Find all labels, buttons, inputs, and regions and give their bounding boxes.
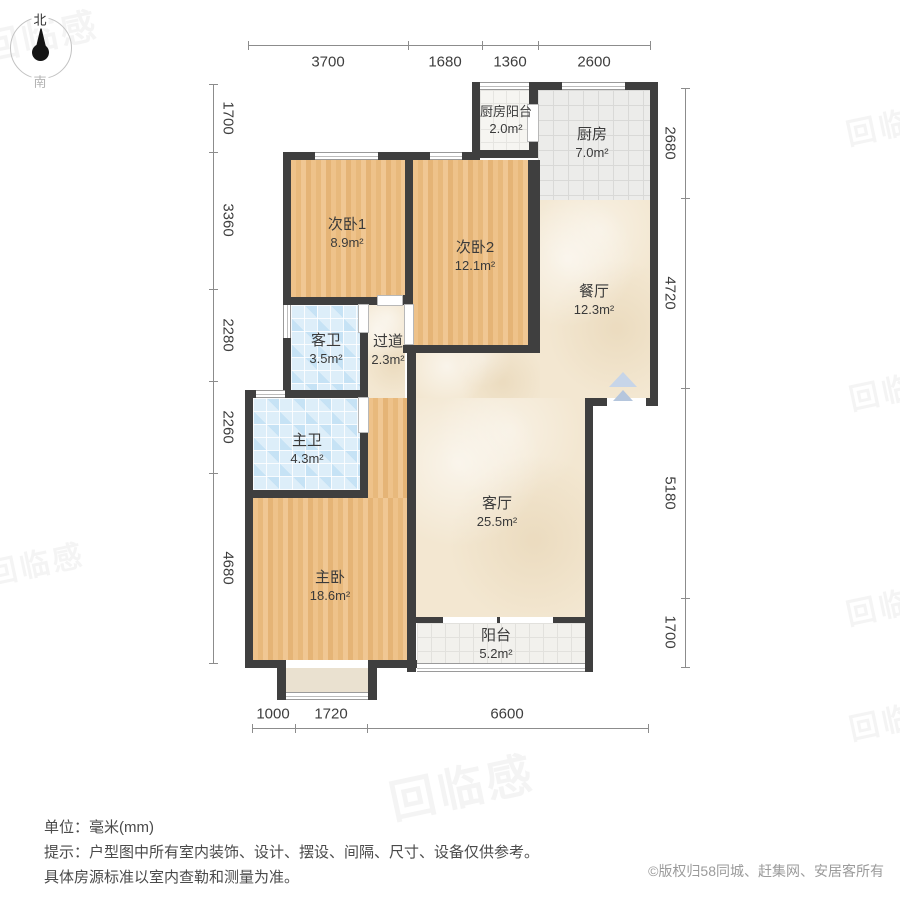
disclaimer-line2: 具体房源标准以室内查勒和测量为准。 (44, 866, 299, 887)
compass-north-label: 北 (31, 10, 48, 29)
room-balcony-label: 阳台 5.2m² (479, 626, 512, 662)
room-kitchen-balcony-label: 厨房阳台 2.0m² (480, 104, 532, 138)
compass-dot-icon (32, 44, 49, 61)
window (430, 152, 462, 160)
bay-window-floor (286, 668, 368, 692)
wall (360, 332, 368, 398)
door-gap (358, 304, 369, 333)
wall (245, 390, 253, 668)
watermark: 回临感 (0, 530, 88, 594)
wall (528, 160, 540, 353)
dim-label: 1700 (662, 615, 679, 648)
door-gap (404, 304, 414, 345)
floorplan-page: { "compass": { "north": "北", "south": "南… (0, 0, 900, 900)
wall (407, 617, 416, 672)
bay-window (286, 692, 368, 700)
wall (650, 90, 658, 398)
room-living-label: 客厅 25.5m² (477, 494, 517, 530)
wall (405, 160, 413, 303)
dim-label: 4720 (662, 276, 679, 309)
room-bedroom2-2-label: 次卧2 12.1m² (455, 238, 495, 274)
watermark: 回临感 (845, 355, 900, 419)
dim-label: 1000 (256, 706, 289, 723)
room-hallway-label: 过道 2.3m² (371, 332, 404, 368)
room-kitchen-label: 厨房 7.0m² (575, 125, 608, 161)
disclaimer-line1: 提示：户型图中所有室内装饰、设计、摆设、间隔、尺寸、设备仅供参考。 (44, 841, 539, 862)
wall (368, 660, 377, 700)
balcony-window (417, 663, 585, 672)
sliding-door-opening (443, 617, 497, 623)
window (283, 305, 291, 338)
watermark: 回临感 (845, 685, 900, 749)
watermark: 回临感 (842, 570, 900, 634)
door-gap (377, 295, 403, 306)
dim-label: 1720 (314, 706, 347, 723)
dim-label: 2260 (220, 410, 237, 443)
door-gap (358, 397, 369, 433)
dim-label: 2280 (220, 318, 237, 351)
wall (585, 398, 593, 672)
window (315, 152, 378, 160)
watermark: 回临感 (842, 90, 900, 154)
wall (403, 345, 528, 353)
dim-label: 1680 (428, 54, 461, 71)
wall (472, 90, 480, 152)
room-bedroom2-1-label: 次卧1 8.9m² (328, 215, 366, 251)
dim-label: 2680 (662, 126, 679, 159)
dim-label: 1360 (493, 54, 526, 71)
master-bedroom-vestibule-floor (368, 398, 407, 498)
window (256, 390, 285, 398)
unit-note: 单位：毫米(mm) (44, 816, 154, 837)
window (562, 82, 625, 90)
wall (277, 660, 286, 700)
compass-south-label: 南 (31, 72, 48, 91)
wall (472, 150, 538, 158)
wall (360, 432, 368, 490)
room-guest-bath-label: 客卫 3.5m² (309, 331, 342, 367)
dim-label: 5180 (662, 476, 679, 509)
watermark: 回临感 (383, 737, 541, 832)
dim-label: 3360 (220, 203, 237, 236)
sliding-door-opening (500, 617, 553, 623)
wall (245, 490, 368, 498)
dim-label: 6600 (490, 706, 523, 723)
room-dining-label: 餐厅 12.3m² (574, 282, 614, 318)
dim-label: 1700 (220, 101, 237, 134)
room-master-bedroom-label: 主卧 18.6m² (310, 568, 350, 604)
living-dining-connector-floor (416, 353, 540, 398)
copyright-note: ©版权归58同城、赶集网、安居客所有 (648, 861, 884, 881)
dim-label: 2600 (577, 54, 610, 71)
room-master-bath-label: 主卫 4.3m² (290, 431, 323, 467)
wall (407, 345, 416, 623)
wall (283, 152, 291, 398)
dim-label: 3700 (311, 54, 344, 71)
wall (646, 398, 658, 406)
dim-label: 4680 (220, 551, 237, 584)
